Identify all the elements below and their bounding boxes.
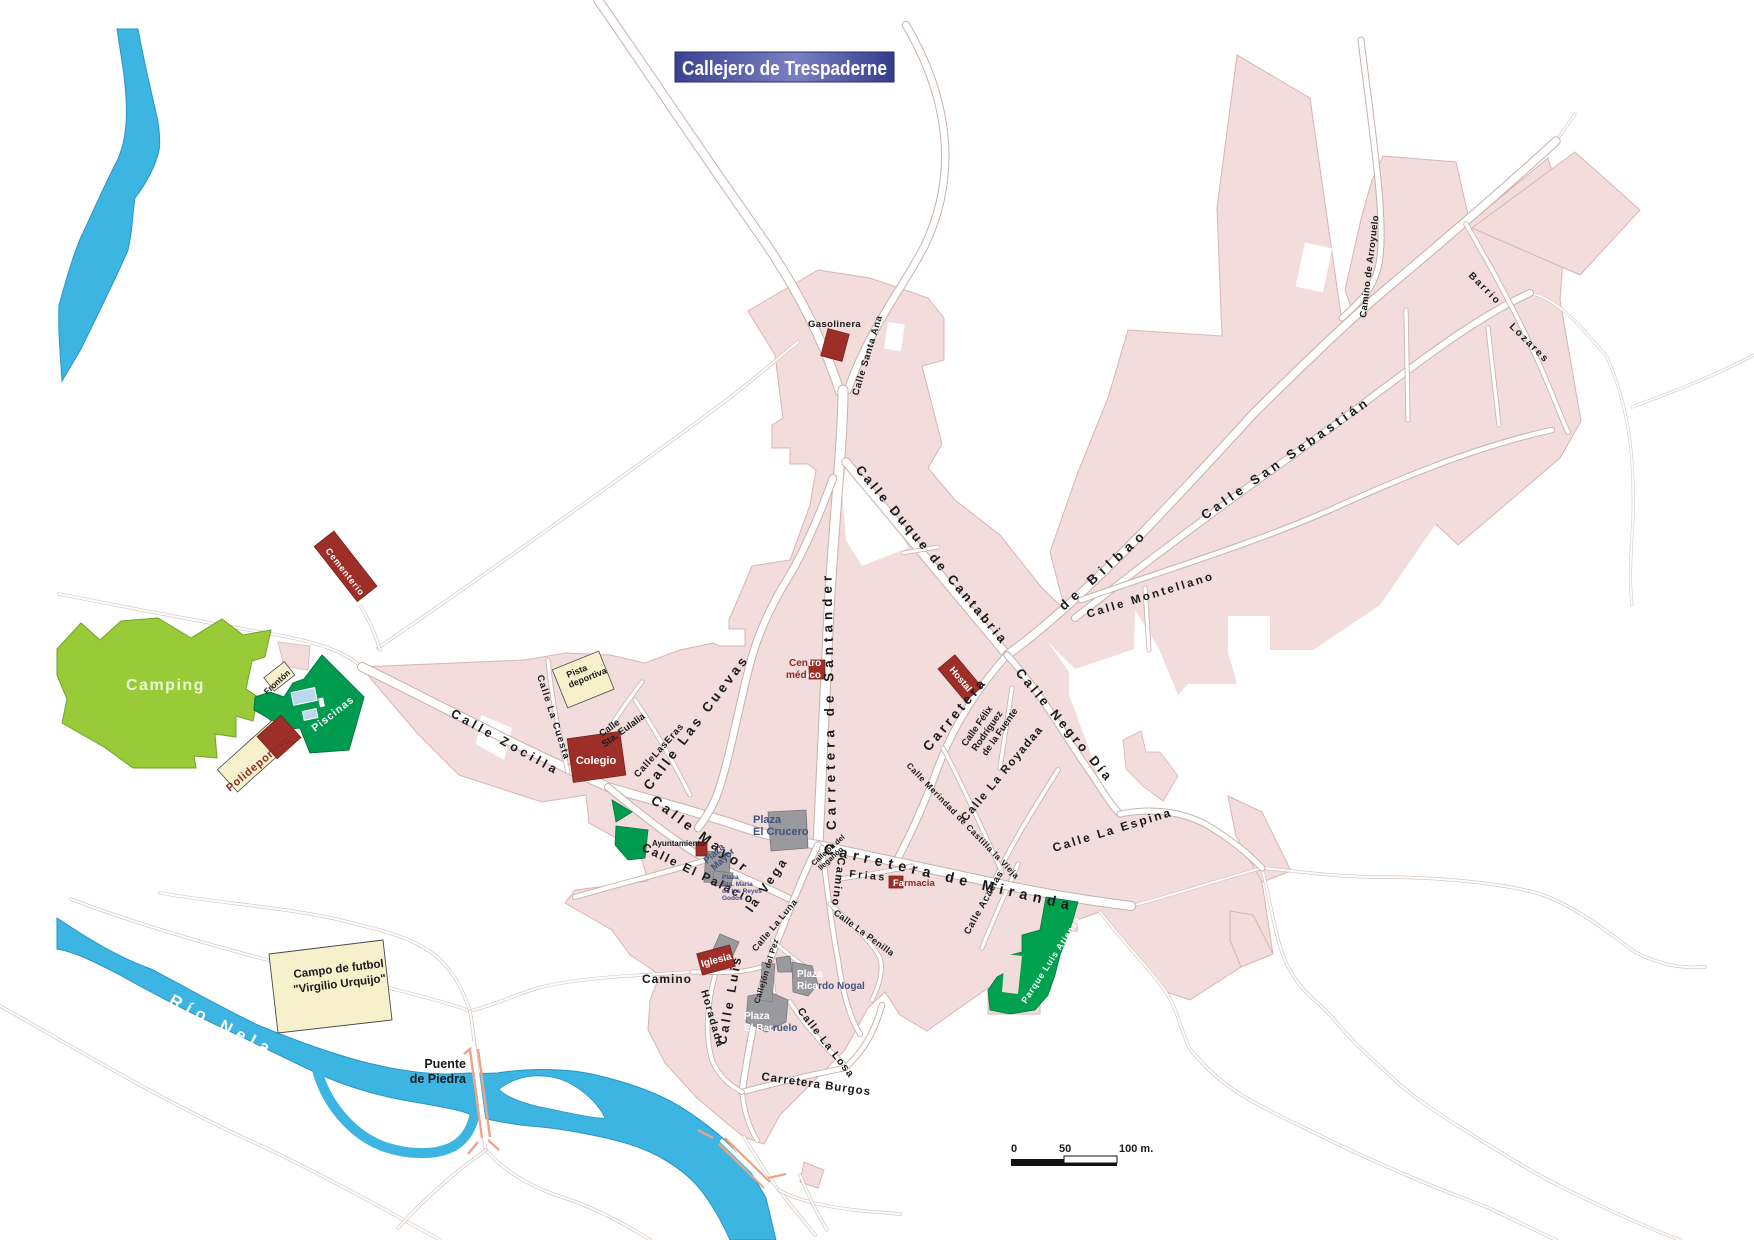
svg-text:de los Reyes: de los Reyes (722, 888, 762, 895)
svg-text:100 m.: 100 m. (1119, 1143, 1153, 1155)
svg-text:Godos: Godos (722, 895, 743, 902)
svg-text:de Piedra: de Piedra (410, 1072, 467, 1086)
svg-text:Ayuntamiento: Ayuntamiento (652, 839, 705, 848)
svg-text:50: 50 (1059, 1143, 1071, 1155)
svg-text:Plaza: Plaza (753, 814, 782, 826)
svg-text:médico: médico (786, 670, 821, 681)
svg-text:Puente: Puente (424, 1057, 466, 1071)
svg-text:Camino: Camino (642, 972, 692, 986)
svg-text:Colegio: Colegio (576, 755, 617, 767)
svg-text:El Crucero: El Crucero (753, 826, 809, 838)
svg-text:0: 0 (1011, 1143, 1017, 1155)
svg-text:Camping: Camping (126, 677, 205, 694)
svg-text:Plaza: Plaza (722, 874, 739, 881)
svg-text:Plaza: Plaza (744, 1011, 770, 1022)
svg-text:Plaza: Plaza (797, 969, 823, 980)
svg-text:Callejero de Trespaderne: Callejero de Trespaderne (682, 58, 887, 80)
svg-text:Gasolinera: Gasolinera (808, 319, 861, 330)
svg-text:Farmacia: Farmacia (893, 878, 935, 889)
svg-text:El Barruelo: El Barruelo (744, 1023, 797, 1034)
svg-text:Sta. María: Sta. María (722, 881, 753, 888)
svg-text:Centro: Centro (789, 658, 821, 669)
svg-text:Ricardo Nogal: Ricardo Nogal (797, 981, 865, 992)
